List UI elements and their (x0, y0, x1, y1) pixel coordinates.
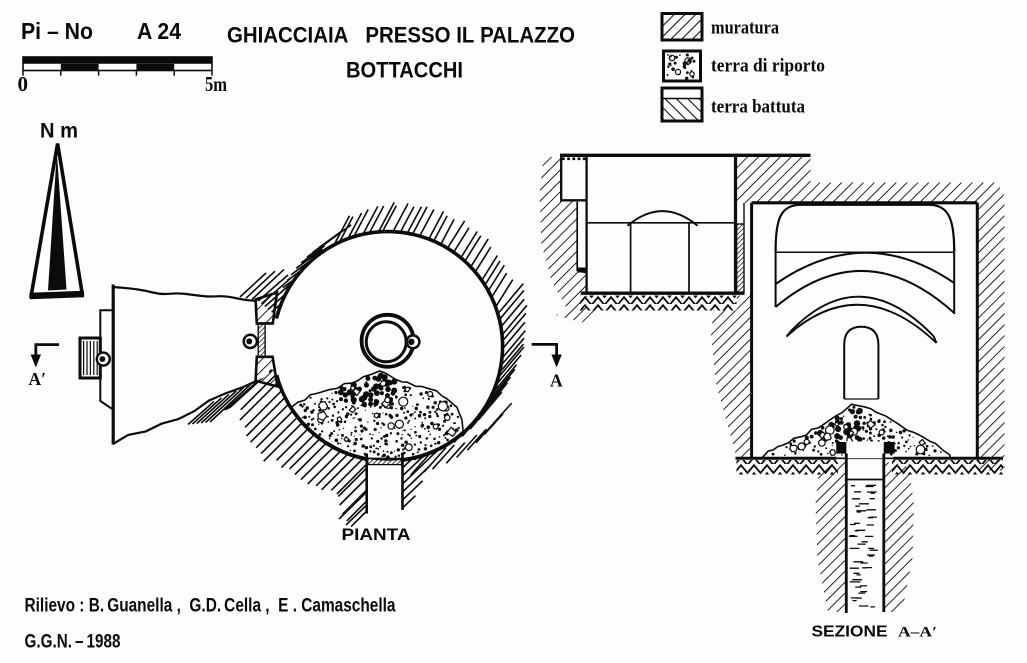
svg-text:GHIACCIAIA PRESSO IL PALAZZO: GHIACCIAIA PRESSO IL PALAZZO (227, 23, 575, 48)
svg-text:PIANTA: PIANTA (342, 526, 411, 544)
svg-text:5m: 5m (205, 72, 227, 96)
svg-text:terra di riporto: terra di riporto (711, 57, 825, 77)
svg-text:G.G.N. – 1988: G.G.N. – 1988 (25, 632, 121, 653)
svg-text:A 24: A 24 (137, 18, 181, 44)
svg-text:A–A′: A–A′ (898, 625, 937, 641)
svg-text:A′: A′ (29, 369, 47, 389)
svg-text:A: A (550, 371, 563, 391)
svg-text:N m: N m (40, 120, 78, 143)
svg-text:Rilievo : B. Guanella , G.D.: Rilievo : B. Guanella , G.D. Cella , E .… (25, 596, 396, 617)
svg-text:0: 0 (18, 72, 29, 96)
svg-text:SEZIONE: SEZIONE (812, 624, 888, 641)
svg-text:BOTTACCHI: BOTTACCHI (346, 58, 463, 83)
svg-text:muratura: muratura (711, 19, 779, 39)
svg-text:terra battuta: terra battuta (711, 98, 805, 118)
svg-text:Pi – No: Pi – No (21, 18, 93, 44)
